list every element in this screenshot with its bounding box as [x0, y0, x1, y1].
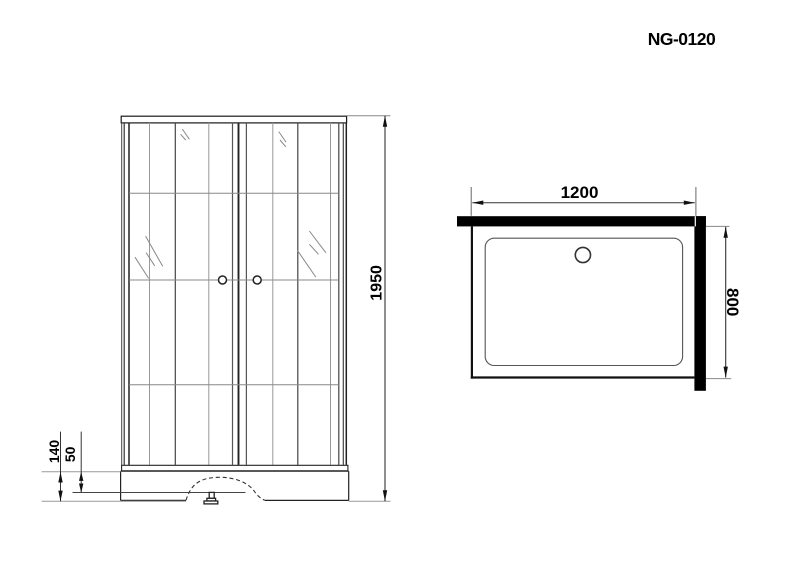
svg-text:1200: 1200: [561, 183, 599, 202]
svg-text:800: 800: [723, 288, 742, 316]
svg-text:NG-0120: NG-0120: [648, 29, 716, 49]
svg-text:50: 50: [62, 446, 78, 462]
svg-text:140: 140: [46, 440, 62, 464]
svg-text:1950: 1950: [369, 265, 386, 301]
